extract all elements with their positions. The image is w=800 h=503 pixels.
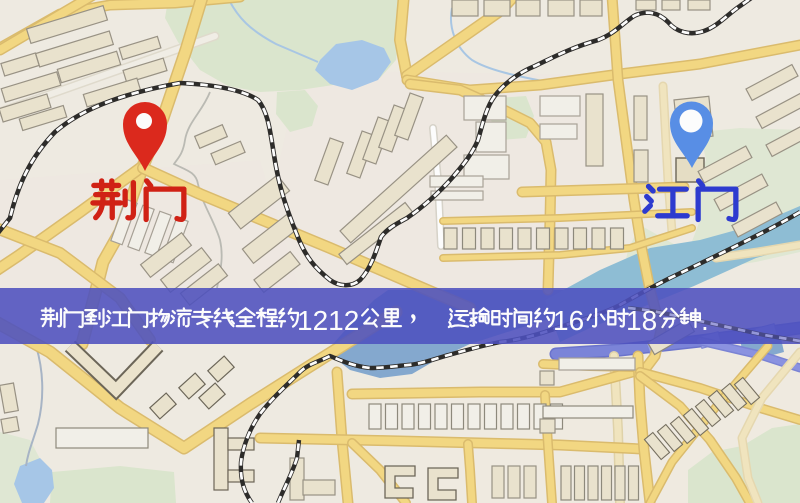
svg-text:16: 16 [553,305,584,336]
svg-text:18: 18 [626,305,657,336]
svg-text:1212: 1212 [297,305,359,336]
svg-text:.: . [701,305,709,336]
